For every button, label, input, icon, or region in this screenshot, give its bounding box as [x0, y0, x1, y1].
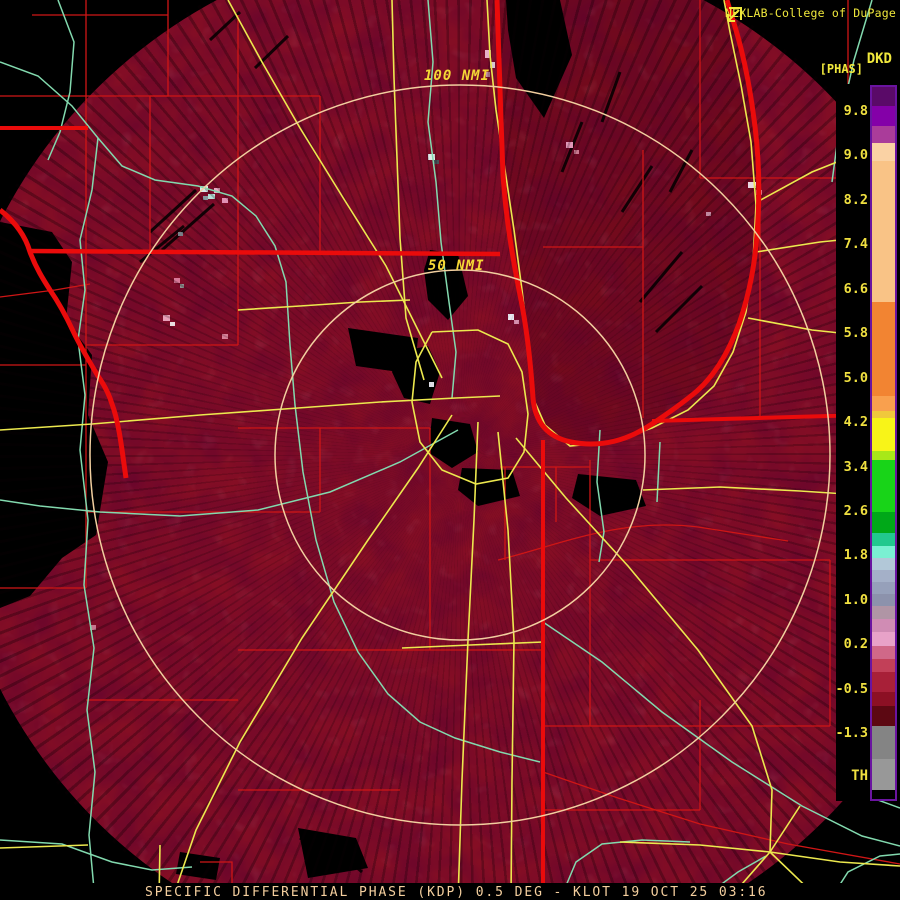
colorbar-tick-label: 4.2 — [808, 414, 868, 430]
colorbar-segment — [872, 161, 895, 302]
colorbar-segment — [872, 582, 895, 594]
external-link-arrow-icon[interactable] — [725, 6, 743, 24]
colorbar-bottom-label: TH — [808, 768, 868, 784]
range-ring-100nmi — [90, 85, 830, 825]
colorbar-segment — [872, 706, 895, 726]
status-bar-text: SPECIFIC DIFFERENTIAL PHASE (KDP) 0.5 DE… — [145, 885, 768, 900]
colorbar-tick-label: 8.2 — [808, 192, 868, 208]
colorbar-segment — [872, 659, 895, 672]
colorbar-tick-label: 3.4 — [808, 459, 868, 475]
range-ring-label-100nmi: 100 NMI — [424, 68, 490, 84]
colorbar-segment — [872, 512, 895, 533]
product-units-label: [PHAS] — [820, 62, 863, 76]
colorbar-segment — [872, 558, 895, 570]
colorbar-segment — [872, 143, 895, 161]
colorbar-tick-label: 1.0 — [808, 592, 868, 608]
colorbar-segment — [872, 411, 895, 418]
colorbar-segment — [872, 460, 895, 512]
colorbar-segment — [872, 606, 895, 619]
colorbar-segment — [872, 396, 895, 411]
colorbar-tick-label: 0.2 — [808, 636, 868, 652]
colorbar-segment — [872, 87, 895, 106]
titlebar: NEXLAB-College of DuPage — [725, 6, 896, 20]
colorbar-tick-label: 2.6 — [808, 503, 868, 519]
colorbar-tick-label: 5.0 — [808, 370, 868, 386]
colorbar-tick-label: 5.8 — [808, 325, 868, 341]
colorbar-segment — [872, 646, 895, 659]
colorbar-segment — [872, 619, 895, 632]
colorbar-segment — [872, 672, 895, 692]
site-title[interactable]: NEXLAB-College of DuPage — [725, 6, 896, 20]
colorbar-segment — [872, 302, 895, 396]
colorbar-tick-label: -0.5 — [808, 681, 868, 697]
colorbar-tick-label: 7.4 — [808, 236, 868, 252]
colorbar-tick-label: 1.8 — [808, 547, 868, 563]
colorbar-tick-label: -1.3 — [808, 725, 868, 741]
colorbar-segment — [872, 594, 895, 606]
colorbar-segment — [872, 126, 895, 143]
county-boundaries — [0, 0, 900, 884]
colorbar-segment — [872, 726, 895, 759]
map-overlay-canvas: 100 NMI 50 NMI — [0, 0, 900, 900]
radar-viewer-window: 100 NMI 50 NMI 9.89.08.27.46.65.85.04.23… — [0, 0, 900, 900]
colorbar-tick-label: 6.6 — [808, 281, 868, 297]
colorbar-segment — [872, 692, 895, 706]
colorbar-segment — [872, 759, 895, 790]
road-lines — [0, 0, 900, 900]
product-code-label: DKD — [867, 51, 892, 67]
colorbar-segment — [872, 418, 895, 451]
colorbar-segment — [872, 106, 895, 126]
colorbar-tick-label: 9.8 — [808, 103, 868, 119]
colorbar-ticks: 9.89.08.27.46.65.85.04.23.42.61.81.00.2-… — [808, 103, 868, 770]
colorbar — [870, 85, 897, 801]
colorbar-segment — [872, 546, 895, 558]
colorbar-segment — [872, 451, 895, 460]
colorbar-segment — [872, 632, 895, 646]
colorbar-tick-label: 9.0 — [808, 147, 868, 163]
colorbar-segment — [872, 790, 895, 799]
range-ring-label-50nmi: 50 NMI — [428, 258, 485, 274]
colorbar-segment — [872, 533, 895, 546]
colorbar-segment — [872, 570, 895, 582]
range-rings — [90, 85, 830, 825]
